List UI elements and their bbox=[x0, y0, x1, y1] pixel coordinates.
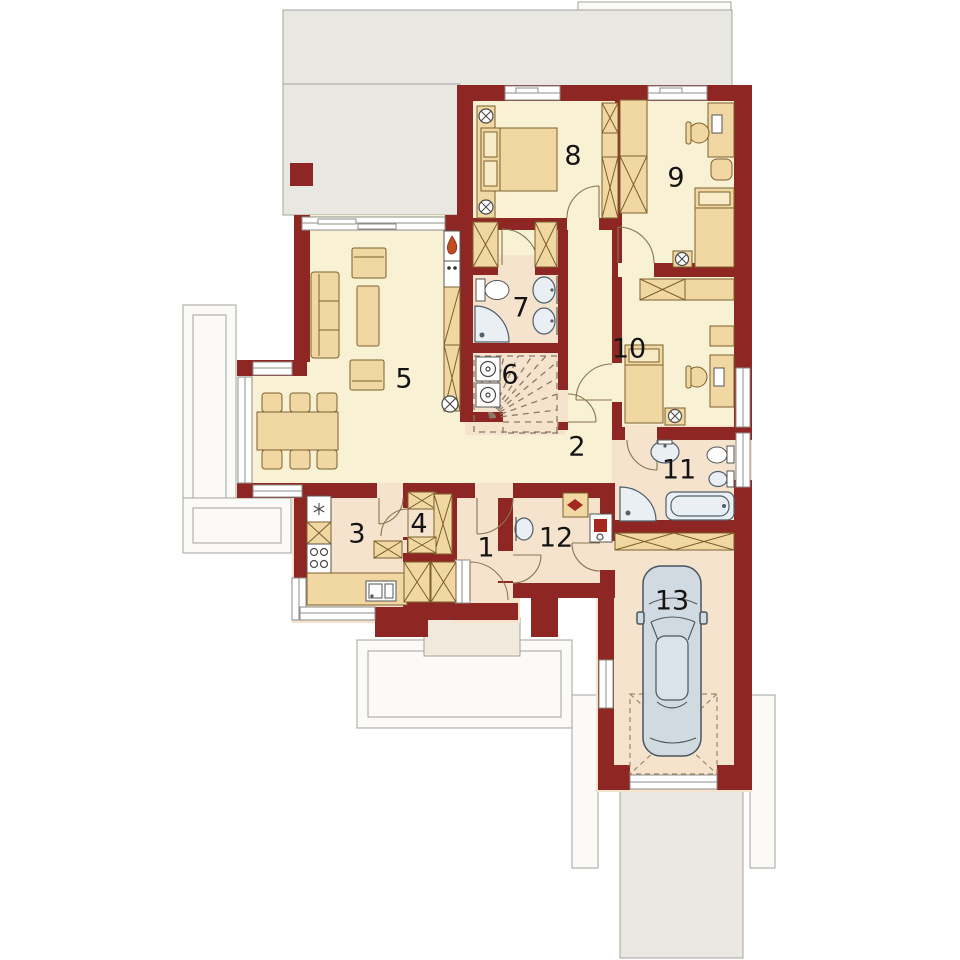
window-bath11 bbox=[736, 433, 750, 487]
lamp-icon bbox=[479, 109, 493, 123]
room-label-1: 1 bbox=[477, 533, 494, 564]
room-label-13: 13 bbox=[655, 586, 689, 617]
window-bedroom8 bbox=[505, 86, 560, 100]
pillow bbox=[484, 161, 497, 186]
pillow bbox=[484, 132, 497, 157]
lamp-icon bbox=[676, 253, 689, 266]
car-mirror bbox=[700, 612, 707, 624]
sideboard bbox=[685, 279, 734, 300]
room-label-11: 11 bbox=[662, 455, 696, 486]
ceiling-lamp-icon bbox=[442, 396, 458, 412]
room-label-7: 7 bbox=[512, 293, 529, 324]
dining-table bbox=[257, 412, 338, 450]
room-label-5: 5 bbox=[395, 364, 412, 395]
monitor bbox=[712, 115, 722, 133]
toilet bbox=[476, 279, 485, 301]
dining-chair bbox=[317, 393, 337, 412]
terrace-side-lower bbox=[183, 498, 291, 553]
room-label-3: 3 bbox=[348, 519, 365, 550]
floor-plan-image: 1 2 3 4 5 6 7 8 9 10 11 12 13 bbox=[0, 0, 960, 960]
room-label-6: 6 bbox=[501, 360, 518, 391]
dining-chair bbox=[290, 450, 310, 469]
dining-chair bbox=[317, 450, 337, 469]
wardrobe bbox=[620, 100, 647, 156]
entry-porch bbox=[424, 618, 520, 656]
dining-chair bbox=[290, 393, 310, 412]
car-mirror bbox=[637, 612, 644, 624]
wardrobe bbox=[602, 133, 618, 157]
garage-side-strip-left bbox=[572, 695, 598, 868]
office-chair bbox=[689, 123, 709, 143]
garage-door bbox=[630, 775, 717, 789]
dining-chair bbox=[262, 393, 282, 412]
coffee-table bbox=[357, 286, 379, 346]
room-label-4: 4 bbox=[410, 509, 427, 540]
room-label-12: 12 bbox=[539, 523, 573, 554]
room-label-2: 2 bbox=[568, 432, 585, 463]
garage-side-door bbox=[599, 660, 613, 708]
terrace-top-left bbox=[283, 84, 460, 215]
media-unit bbox=[444, 261, 460, 287]
armchair bbox=[352, 248, 386, 278]
monitor bbox=[714, 368, 724, 386]
sofa bbox=[311, 272, 339, 358]
room-label-9: 9 bbox=[667, 163, 684, 194]
room-label-8: 8 bbox=[564, 141, 581, 172]
window-living-top bbox=[302, 217, 445, 230]
garage-side-strip-right bbox=[750, 695, 775, 868]
window-bedroom9 bbox=[648, 86, 707, 100]
utility-basin bbox=[515, 518, 533, 540]
lamp-icon bbox=[669, 410, 682, 423]
dining-chair bbox=[262, 450, 282, 469]
terrace-chimney bbox=[290, 163, 313, 186]
bidet bbox=[727, 471, 734, 487]
armchair bbox=[350, 360, 384, 390]
shelf bbox=[710, 326, 734, 346]
storage-shelf bbox=[615, 533, 734, 550]
lamp-icon bbox=[479, 200, 493, 214]
entry-door-opening bbox=[455, 560, 470, 603]
driveway bbox=[620, 790, 743, 958]
pillow bbox=[699, 192, 730, 205]
window-bedroom10 bbox=[736, 368, 750, 427]
floor-plan-page: 1 2 3 4 5 6 7 8 9 10 11 12 13 bbox=[0, 0, 960, 960]
stove bbox=[307, 544, 331, 573]
terrace-top bbox=[283, 10, 732, 86]
room-label-10: 10 bbox=[612, 334, 646, 365]
toilet bbox=[727, 446, 734, 463]
chair bbox=[711, 159, 732, 180]
